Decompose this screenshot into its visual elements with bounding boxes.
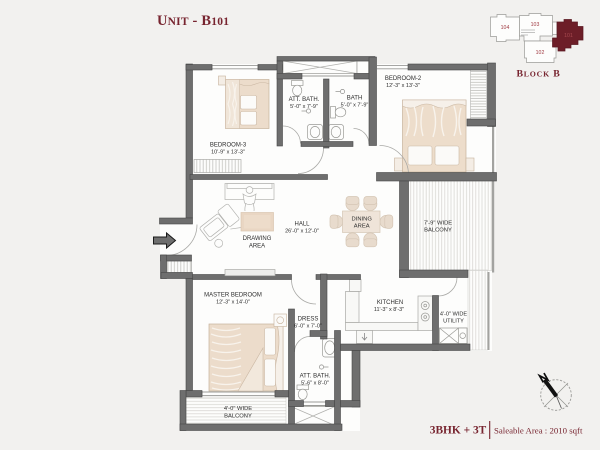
svg-text:KITCHEN: KITCHEN xyxy=(377,300,403,306)
svg-text:DINING: DINING xyxy=(352,217,373,223)
svg-text:12'-3" x 14'-0": 12'-3" x 14'-0" xyxy=(216,300,250,306)
svg-text:101: 101 xyxy=(564,33,573,39)
svg-text:DRAWING: DRAWING xyxy=(243,236,272,242)
svg-text:26'-0" x 12'-0": 26'-0" x 12'-0" xyxy=(285,229,319,235)
svg-text:11'-3" x 8'-3": 11'-3" x 8'-3" xyxy=(374,307,404,313)
svg-text:BALCONY: BALCONY xyxy=(424,228,452,234)
svg-text:Saleable Area : 2010 sqft: Saleable Area : 2010 sqft xyxy=(494,426,583,436)
svg-text:5'-0" x 7'-9": 5'-0" x 7'-9" xyxy=(341,103,369,109)
svg-text:HALL: HALL xyxy=(294,222,310,228)
svg-text:MASTER BEDROOM: MASTER BEDROOM xyxy=(204,293,262,299)
svg-text:5'-6" x 8'-0": 5'-6" x 8'-0" xyxy=(301,381,329,387)
svg-text:5'-0" x 7'-9": 5'-0" x 7'-9" xyxy=(290,104,318,110)
svg-text:104: 104 xyxy=(501,25,510,31)
svg-text:102: 102 xyxy=(536,50,545,56)
svg-text:BEDROOM-2: BEDROOM-2 xyxy=(385,76,422,82)
svg-text:BEDROOM-3: BEDROOM-3 xyxy=(210,143,247,149)
svg-text:UTILITY: UTILITY xyxy=(443,319,464,325)
svg-text:10'-9" x 13'-3": 10'-9" x 13'-3" xyxy=(211,150,245,156)
svg-text:BATH: BATH xyxy=(347,96,363,102)
svg-text:BALCONY: BALCONY xyxy=(224,414,252,420)
svg-text:AREA: AREA xyxy=(354,224,370,230)
svg-text:6'-0" x 7'-0": 6'-0" x 7'-0" xyxy=(294,324,322,330)
svg-text:ATT. BATH.: ATT. BATH. xyxy=(289,97,320,103)
svg-text:ATT. BATH.: ATT. BATH. xyxy=(300,374,331,380)
svg-text:4'-0" WIDE: 4'-0" WIDE xyxy=(224,406,252,412)
svg-text:3BHK + 3T: 3BHK + 3T xyxy=(430,425,487,437)
svg-text:AREA: AREA xyxy=(249,244,265,250)
svg-text:4'-0" WIDE: 4'-0" WIDE xyxy=(440,312,468,318)
svg-text:12'-3" x 13'-3": 12'-3" x 13'-3" xyxy=(386,83,420,89)
svg-text:UNIT - B101: UNIT - B101 xyxy=(157,13,229,29)
svg-text:7'-9" WIDE: 7'-9" WIDE xyxy=(424,221,452,227)
svg-text:103: 103 xyxy=(531,22,540,28)
svg-text:DRESS: DRESS xyxy=(298,317,319,323)
svg-text:BLOCK B: BLOCK B xyxy=(516,69,560,80)
